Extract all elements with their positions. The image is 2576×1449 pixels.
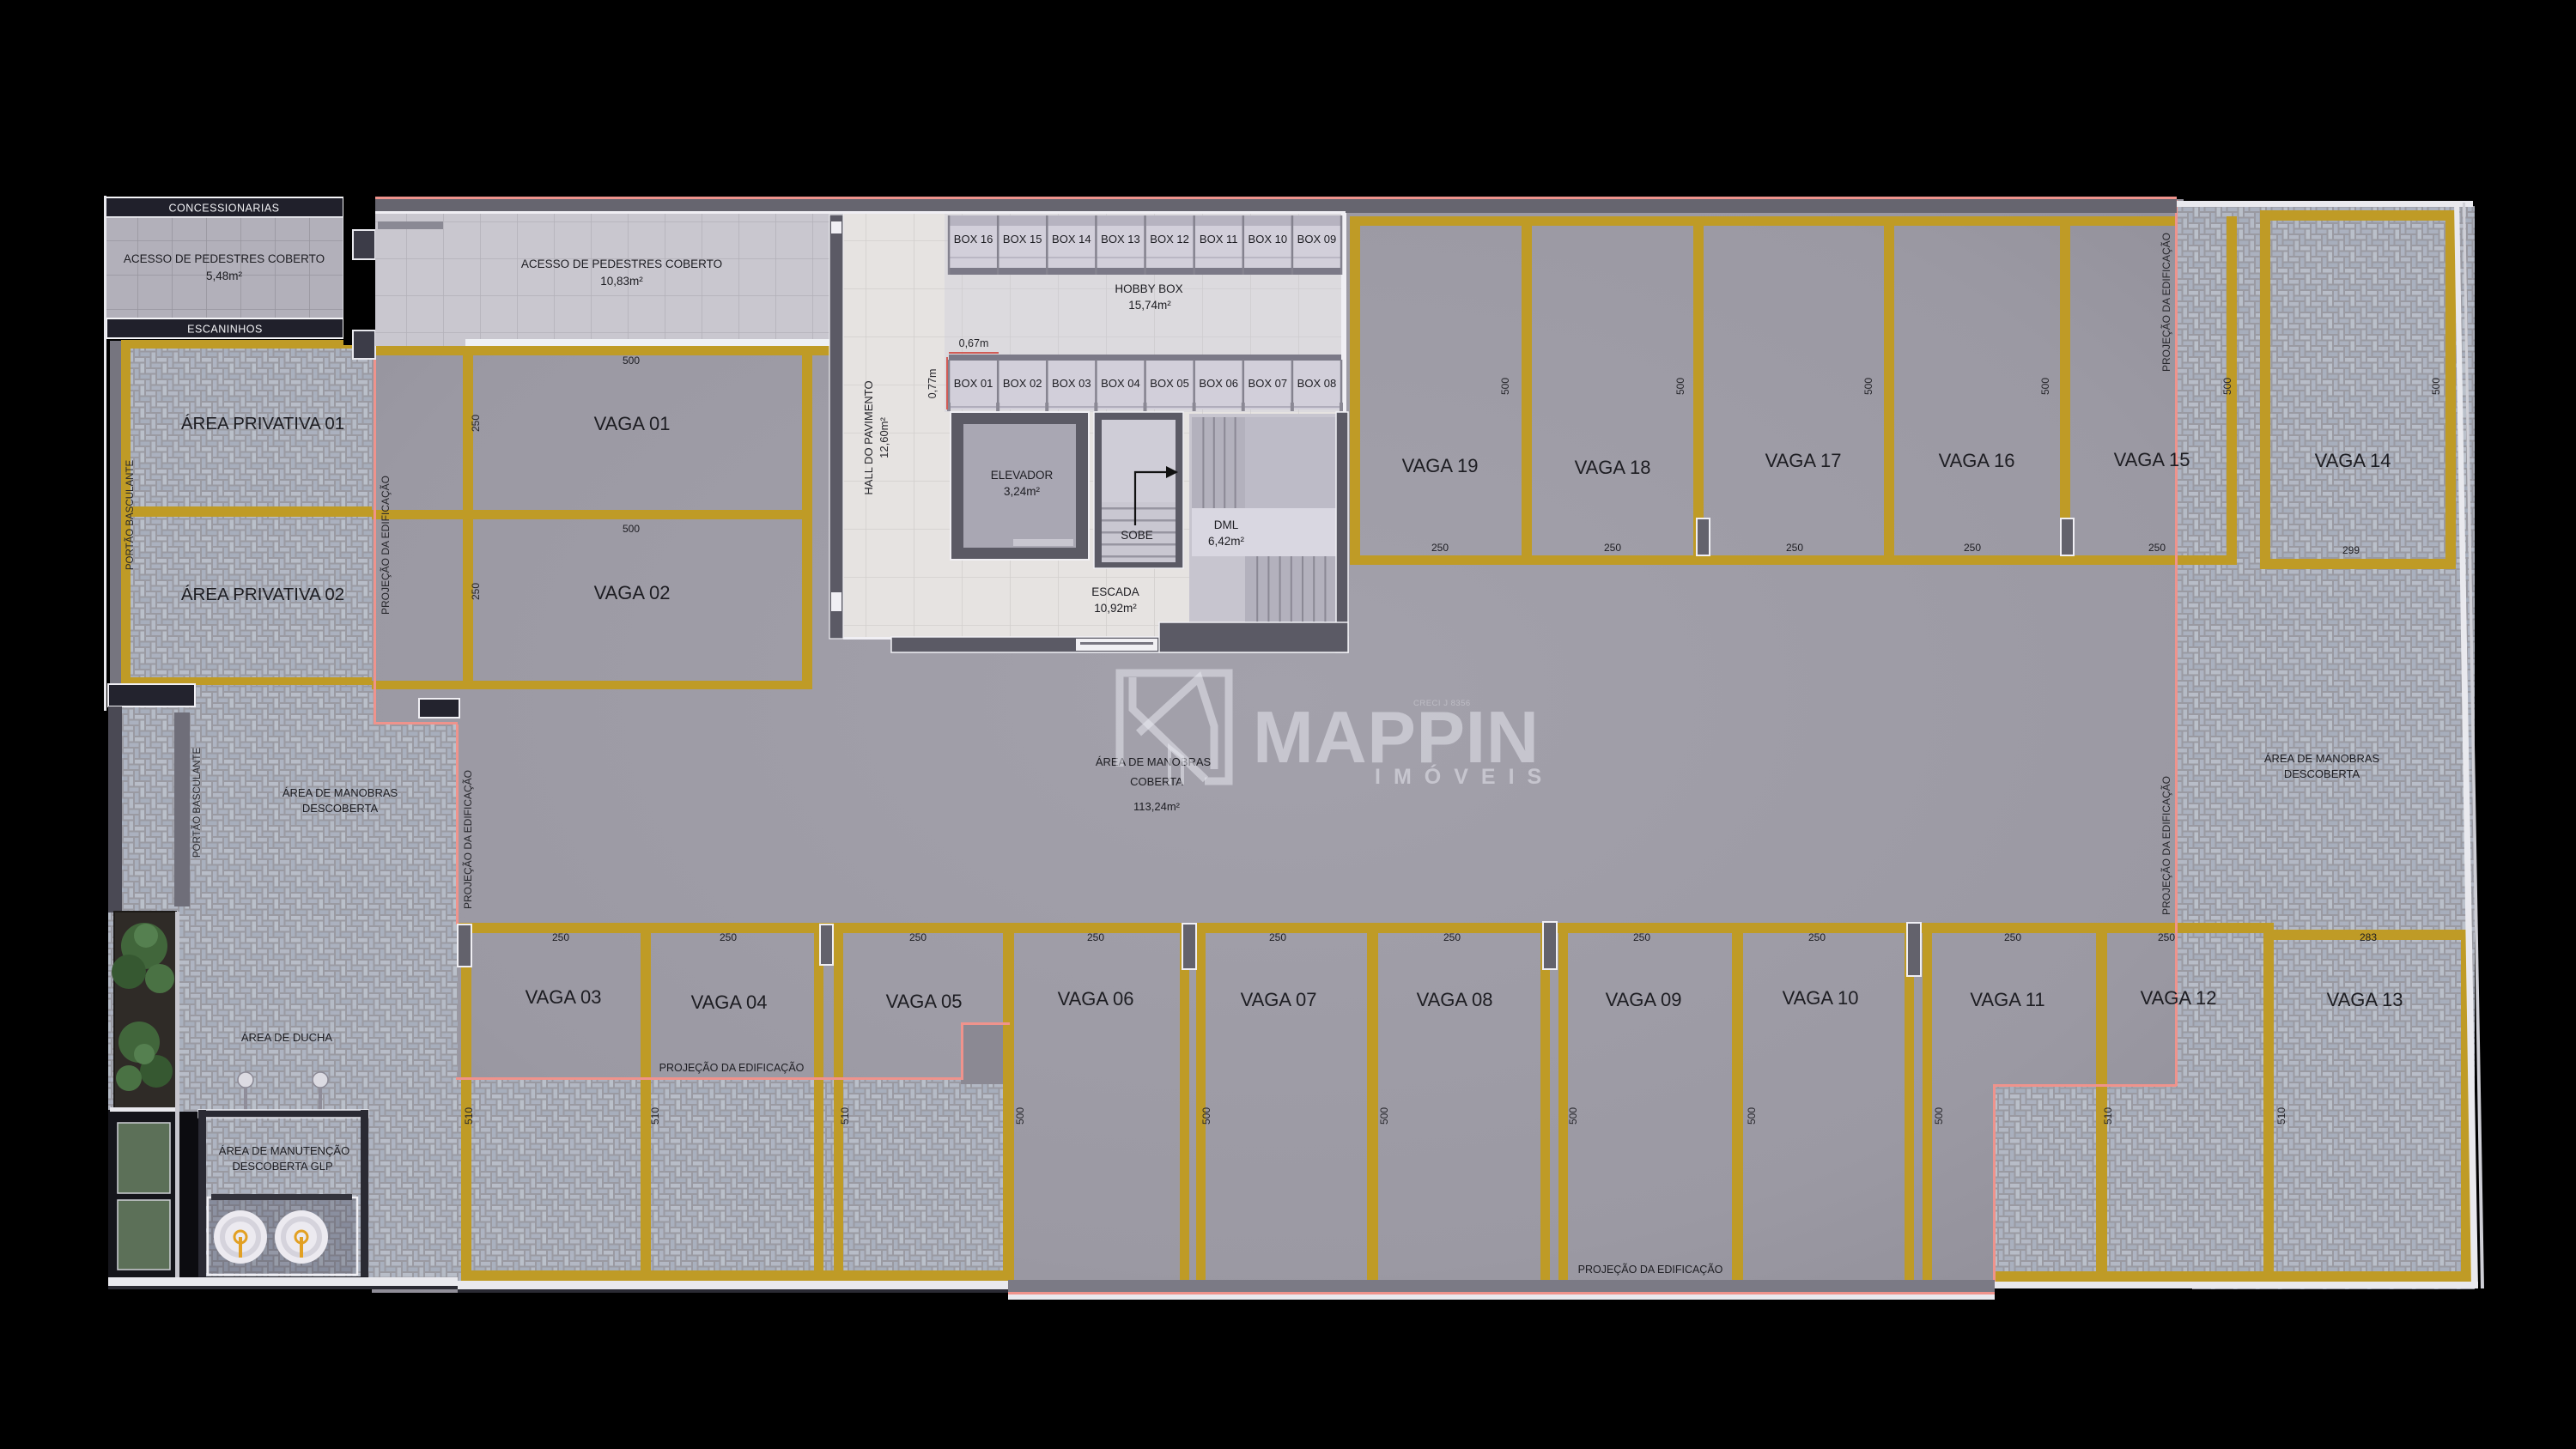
svg-text:ÁREA DE DUCHA: ÁREA DE DUCHA: [241, 1031, 333, 1044]
svg-text:BOX 11: BOX 11: [1200, 233, 1238, 246]
svg-text:ÁREA PRIVATIVA 02: ÁREA PRIVATIVA 02: [181, 585, 344, 604]
svg-text:250: 250: [2158, 931, 2175, 943]
svg-text:VAGA 05: VAGA 05: [886, 991, 963, 1012]
svg-text:250: 250: [720, 931, 737, 943]
svg-text:DML: DML: [1214, 518, 1239, 531]
svg-text:HOBBY BOX: HOBBY BOX: [1115, 282, 1182, 295]
svg-text:BOX 04: BOX 04: [1101, 377, 1140, 390]
svg-text:PORTÃO BASCULANTE: PORTÃO BASCULANTE: [125, 460, 136, 571]
svg-text:15,74m²: 15,74m²: [1128, 299, 1171, 312]
svg-text:250: 250: [2004, 931, 2021, 943]
svg-text:500: 500: [2221, 378, 2233, 395]
svg-text:VAGA 17: VAGA 17: [1765, 450, 1842, 471]
svg-text:VAGA 02: VAGA 02: [594, 582, 671, 603]
svg-text:250: 250: [1431, 542, 1449, 554]
svg-text:283: 283: [2360, 931, 2377, 943]
svg-text:VAGA 01: VAGA 01: [594, 413, 671, 434]
svg-text:DESCOBERTA: DESCOBERTA: [302, 802, 379, 815]
svg-text:VAGA 16: VAGA 16: [1939, 450, 2015, 471]
svg-text:500: 500: [2430, 378, 2442, 395]
svg-text:VAGA 19: VAGA 19: [1402, 455, 1479, 476]
svg-text:BOX 06: BOX 06: [1199, 377, 1238, 390]
svg-text:VAGA 18: VAGA 18: [1575, 457, 1651, 478]
svg-text:250: 250: [1443, 931, 1461, 943]
svg-text:250: 250: [1633, 931, 1650, 943]
svg-text:500: 500: [1674, 378, 1686, 395]
svg-text:BOX 01: BOX 01: [954, 377, 993, 390]
svg-text:BOX 02: BOX 02: [1003, 377, 1042, 390]
svg-text:250: 250: [1786, 542, 1803, 554]
svg-text:510: 510: [839, 1107, 851, 1125]
svg-text:250: 250: [1964, 542, 1981, 554]
svg-text:113,24m²: 113,24m²: [1133, 800, 1181, 813]
svg-text:VAGA 04: VAGA 04: [691, 991, 768, 1013]
svg-text:IMÓVEIS: IMÓVEIS: [1375, 763, 1554, 789]
svg-text:250: 250: [1808, 931, 1826, 943]
svg-text:DESCOBERTA: DESCOBERTA: [2284, 767, 2360, 780]
svg-text:SOBE: SOBE: [1121, 529, 1153, 542]
svg-text:BOX 05: BOX 05: [1150, 377, 1189, 390]
svg-text:ESCADA: ESCADA: [1091, 585, 1139, 598]
svg-text:250: 250: [2148, 542, 2166, 554]
svg-text:ACESSO DE PEDESTRES COBERTO: ACESSO DE PEDESTRES COBERTO: [521, 258, 722, 270]
svg-text:BOX 16: BOX 16: [954, 233, 993, 246]
svg-text:500: 500: [1499, 378, 1511, 395]
svg-text:500: 500: [623, 355, 640, 367]
svg-text:PROJEÇÃO DA EDIFICAÇÃO: PROJEÇÃO DA EDIFICAÇÃO: [1578, 1264, 1723, 1276]
svg-text:PROJEÇÃO DA EDIFICAÇÃO: PROJEÇÃO DA EDIFICAÇÃO: [659, 1062, 805, 1074]
svg-text:VAGA 15: VAGA 15: [2114, 449, 2190, 470]
svg-text:VAGA 08: VAGA 08: [1417, 989, 1493, 1010]
svg-text:500: 500: [1200, 1107, 1212, 1125]
svg-text:PROJEÇÃO DA EDIFICAÇÃO: PROJEÇÃO DA EDIFICAÇÃO: [2160, 776, 2172, 915]
svg-text:BOX 13: BOX 13: [1101, 233, 1140, 246]
svg-text:PROJEÇÃO DA EDIFICAÇÃO: PROJEÇÃO DA EDIFICAÇÃO: [462, 770, 474, 909]
svg-text:250: 250: [1087, 931, 1104, 943]
svg-text:3,24m²: 3,24m²: [1004, 485, 1041, 498]
svg-text:500: 500: [1567, 1107, 1579, 1125]
svg-text:510: 510: [649, 1107, 661, 1125]
svg-text:BOX 08: BOX 08: [1297, 377, 1337, 390]
svg-text:500: 500: [2039, 378, 2051, 395]
svg-text:10,83m²: 10,83m²: [600, 275, 643, 288]
svg-text:510: 510: [463, 1107, 475, 1125]
svg-text:PORTÃO BASCULANTE: PORTÃO BASCULANTE: [191, 748, 203, 858]
svg-text:BOX 03: BOX 03: [1052, 377, 1091, 390]
svg-text:250: 250: [470, 583, 482, 600]
svg-text:CRECI J 8356: CRECI J 8356: [1413, 699, 1471, 708]
svg-text:VAGA 09: VAGA 09: [1606, 989, 1682, 1010]
svg-text:250: 250: [470, 415, 482, 432]
svg-text:COBERTA: COBERTA: [1130, 775, 1183, 788]
svg-text:ÁREA DE MANUTENÇÃO: ÁREA DE MANUTENÇÃO: [219, 1144, 349, 1157]
svg-text:500: 500: [1014, 1107, 1026, 1125]
svg-text:BOX 15: BOX 15: [1003, 233, 1042, 246]
svg-text:12,60m²: 12,60m²: [878, 416, 890, 458]
svg-text:BOX 09: BOX 09: [1297, 233, 1337, 246]
svg-text:VAGA 03: VAGA 03: [526, 986, 602, 1008]
svg-text:500: 500: [1378, 1107, 1390, 1125]
svg-text:250: 250: [1269, 931, 1286, 943]
svg-text:510: 510: [2102, 1107, 2114, 1125]
svg-text:ESCANINHOS: ESCANINHOS: [187, 324, 263, 336]
svg-text:VAGA 11: VAGA 11: [1970, 989, 2044, 1010]
svg-text:5,48m²: 5,48m²: [206, 270, 243, 282]
svg-text:PROJEÇÃO DA EDIFICAÇÃO: PROJEÇÃO DA EDIFICAÇÃO: [380, 476, 392, 615]
svg-text:250: 250: [1604, 542, 1621, 554]
svg-text:CONCESSIONARIAS: CONCESSIONARIAS: [168, 203, 279, 215]
svg-text:10,92m²: 10,92m²: [1094, 602, 1137, 615]
svg-text:250: 250: [909, 931, 927, 943]
svg-text:BOX 10: BOX 10: [1249, 233, 1288, 246]
svg-text:500: 500: [1862, 378, 1874, 395]
svg-text:VAGA 10: VAGA 10: [1783, 987, 1859, 1009]
svg-text:ÁREA PRIVATIVA 01: ÁREA PRIVATIVA 01: [181, 414, 344, 433]
svg-text:VAGA 14: VAGA 14: [2315, 450, 2391, 471]
svg-text:0,67m: 0,67m: [959, 337, 989, 349]
svg-text:HALL DO PAVIMENTO: HALL DO PAVIMENTO: [862, 380, 875, 494]
svg-text:ELEVADOR: ELEVADOR: [991, 469, 1054, 482]
svg-text:0,77m: 0,77m: [927, 369, 939, 399]
svg-text:BOX 07: BOX 07: [1249, 377, 1288, 390]
svg-text:500: 500: [623, 523, 640, 535]
svg-text:250: 250: [552, 931, 569, 943]
svg-text:500: 500: [1933, 1107, 1945, 1125]
svg-text:500: 500: [1746, 1107, 1758, 1125]
svg-text:VAGA 12: VAGA 12: [2141, 987, 2217, 1009]
svg-text:6,42m²: 6,42m²: [1208, 535, 1245, 548]
svg-text:PROJEÇÃO DA EDIFICAÇÃO: PROJEÇÃO DA EDIFICAÇÃO: [2160, 233, 2172, 372]
svg-text:299: 299: [2342, 544, 2360, 556]
svg-text:510: 510: [2275, 1107, 2287, 1125]
svg-text:DESCOBERTA GLP: DESCOBERTA GLP: [232, 1160, 332, 1173]
svg-text:VAGA 13: VAGA 13: [2327, 989, 2403, 1010]
svg-text:BOX 12: BOX 12: [1150, 233, 1189, 246]
svg-text:ACESSO DE PEDESTRES COBERTO: ACESSO DE PEDESTRES COBERTO: [124, 252, 325, 265]
svg-text:BOX 14: BOX 14: [1052, 233, 1091, 246]
svg-text:ÁREA DE MANOBRAS: ÁREA DE MANOBRAS: [2264, 752, 2380, 765]
svg-text:ÁREA DE MANOBRAS: ÁREA DE MANOBRAS: [283, 786, 398, 799]
svg-text:VAGA 06: VAGA 06: [1058, 988, 1134, 1009]
svg-text:VAGA 07: VAGA 07: [1241, 989, 1317, 1010]
